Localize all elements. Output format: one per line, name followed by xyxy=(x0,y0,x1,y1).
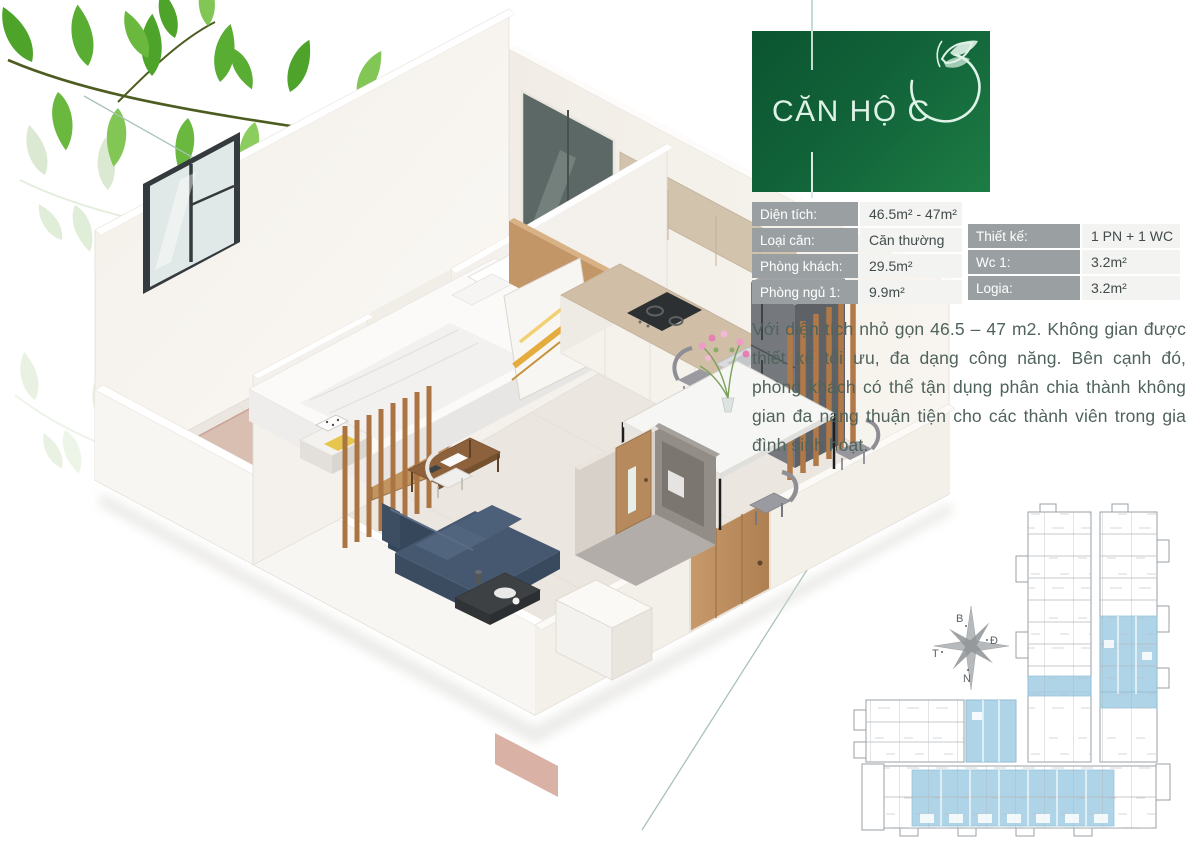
spec-table-left: Diện tích: 46.5m² - 47m² Loại căn: Căn t… xyxy=(752,202,962,304)
spec-value: 29.5m² xyxy=(860,254,962,278)
accent-line-bottom xyxy=(811,152,813,198)
table-row: Phòng ngủ 1: 9.9m² xyxy=(752,280,962,304)
spec-value: 46.5m² - 47m² xyxy=(860,202,962,226)
spec-table-right: Thiết kế: 1 PN + 1 WC Wc 1: 3.2m² Logia:… xyxy=(968,224,1180,300)
bathroom-door xyxy=(616,430,651,534)
spec-label: Phòng khách: xyxy=(752,254,858,278)
table-row: Thiết kế: 1 PN + 1 WC xyxy=(968,224,1180,248)
building-site-plan xyxy=(854,504,1170,836)
table-row: Loại căn: Căn thường xyxy=(752,228,962,252)
compass-south-label: N xyxy=(963,673,971,685)
spec-label: Wc 1: xyxy=(968,250,1080,274)
spec-value: 1 PN + 1 WC xyxy=(1082,224,1180,248)
accent-line-top xyxy=(811,0,813,70)
spec-label: Thiết kế: xyxy=(968,224,1080,248)
description-text: Với diện tích nhỏ gọn 46.5 – 47 m2. Khôn… xyxy=(752,315,1186,460)
brochure-page: { "badge": { "title": "CĂN HỘ C" }, "spe… xyxy=(0,0,1200,857)
spec-label: Phòng ngủ 1: xyxy=(752,280,858,304)
table-row: Phòng khách: 29.5m² xyxy=(752,254,962,278)
unit-badge: CĂN HỘ C xyxy=(752,31,990,192)
compass-west-label: T xyxy=(932,648,939,660)
spec-value: 3.2m² xyxy=(1082,250,1180,274)
spec-label: Loại căn: xyxy=(752,228,858,252)
spec-value: 3.2m² xyxy=(1082,276,1180,300)
leaf-circle-logo-icon xyxy=(894,37,982,137)
compass-rose: B Đ T N xyxy=(930,605,1011,690)
table-row: Logia: 3.2m² xyxy=(968,276,1180,300)
compass-north-label: B xyxy=(956,613,963,625)
rose-rug xyxy=(495,733,558,797)
spec-value: 9.9m² xyxy=(860,280,962,304)
table-row: Diện tích: 46.5m² - 47m² xyxy=(752,202,962,226)
table-row: Wc 1: 3.2m² xyxy=(968,250,1180,274)
spec-label: Diện tích: xyxy=(752,202,858,226)
spec-label: Logia: xyxy=(968,276,1080,300)
compass-east-label: Đ xyxy=(990,635,998,647)
spec-value: Căn thường xyxy=(860,228,962,252)
